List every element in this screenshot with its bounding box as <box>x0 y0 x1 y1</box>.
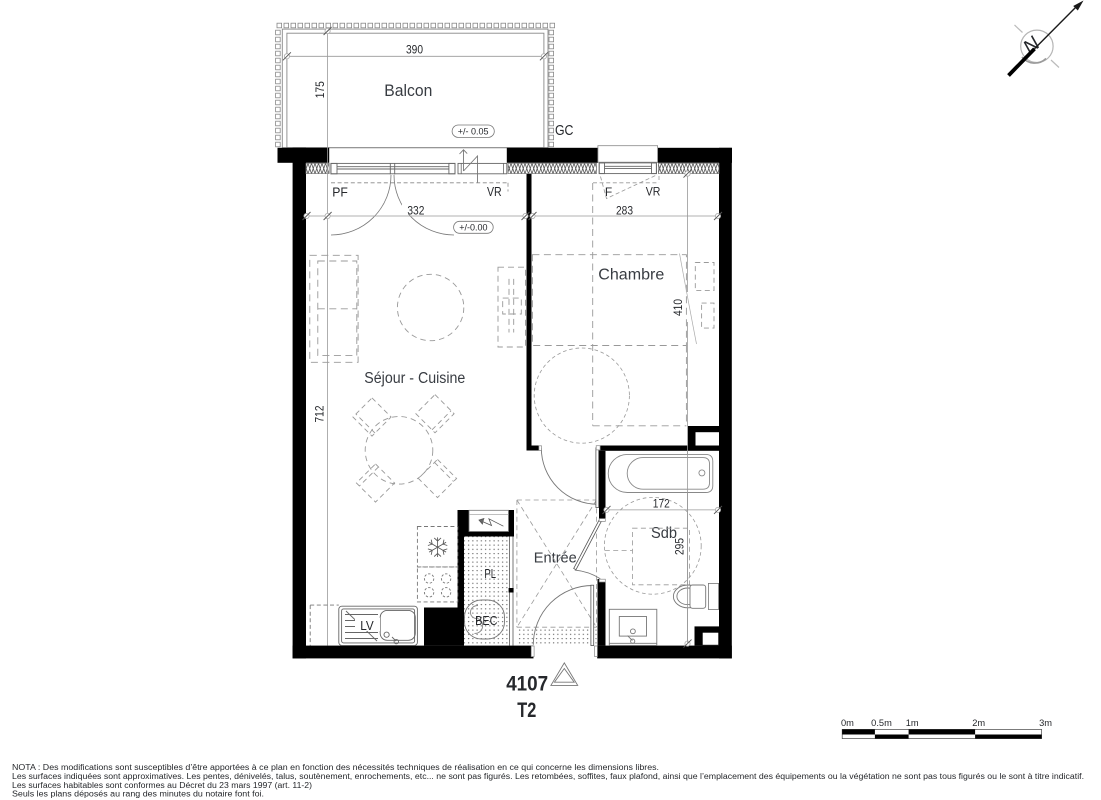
svg-text:283: 283 <box>616 205 633 218</box>
svg-text:2m: 2m <box>972 718 985 728</box>
svg-text:BEC: BEC <box>475 614 497 628</box>
svg-text:175: 175 <box>314 81 327 98</box>
svg-text:Balcon: Balcon <box>384 82 432 100</box>
svg-text:410: 410 <box>672 299 685 316</box>
svg-text:+/- 0.05: +/- 0.05 <box>458 126 489 136</box>
svg-text:390: 390 <box>406 44 423 57</box>
svg-text:+/-0.00: +/-0.00 <box>459 223 487 233</box>
svg-text:332: 332 <box>407 205 424 218</box>
svg-text:F: F <box>605 185 612 199</box>
svg-text:712: 712 <box>314 406 327 423</box>
svg-text:PF: PF <box>332 185 348 200</box>
svg-text:VR: VR <box>646 184 661 198</box>
svg-text:1m: 1m <box>906 718 919 728</box>
svg-text:Les surfaces habitables sont c: Les surfaces habitables sont conformes a… <box>12 781 312 790</box>
svg-text:3m: 3m <box>1039 718 1052 728</box>
svg-text:PL: PL <box>484 567 496 581</box>
svg-text:Les surfaces indiquées sont ap: Les surfaces indiquées sont approximativ… <box>12 772 1084 781</box>
svg-text:Seuls les plans déposés au ran: Seuls les plans déposés au rang des minu… <box>12 790 264 799</box>
svg-text:0.5m: 0.5m <box>871 718 892 728</box>
svg-text:T2: T2 <box>517 699 536 722</box>
svg-text:GC: GC <box>555 123 574 139</box>
svg-text:172: 172 <box>653 498 670 511</box>
svg-text:Chambre: Chambre <box>598 267 664 284</box>
svg-text:0m: 0m <box>841 718 854 728</box>
svg-text:Entrée: Entrée <box>534 550 577 566</box>
svg-text:LV: LV <box>360 619 374 633</box>
svg-text:Sdb: Sdb <box>651 525 677 542</box>
svg-text:Séjour - Cuisine: Séjour - Cuisine <box>364 370 465 387</box>
svg-text:VR: VR <box>487 184 502 199</box>
svg-text:4107: 4107 <box>506 672 548 696</box>
svg-text:NOTA : Des modifications sont: NOTA : Des modifications sont susceptibl… <box>12 763 659 772</box>
